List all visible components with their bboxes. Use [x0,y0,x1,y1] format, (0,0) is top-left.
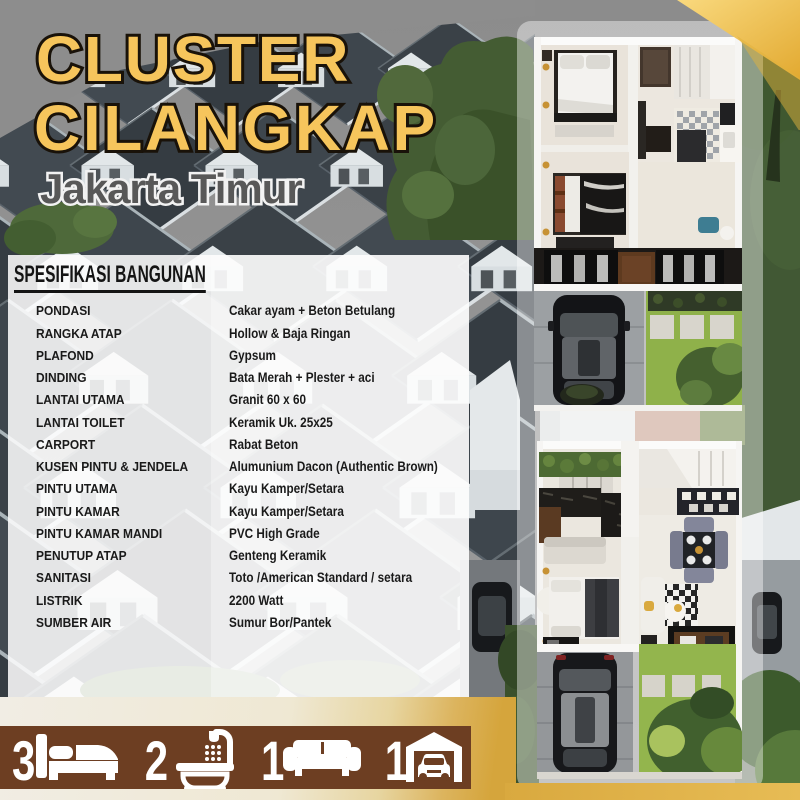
svg-text:1: 1 [385,730,408,789]
svg-text:2: 2 [145,730,168,789]
svg-text:3: 3 [12,730,35,789]
svg-text:1: 1 [261,730,284,789]
